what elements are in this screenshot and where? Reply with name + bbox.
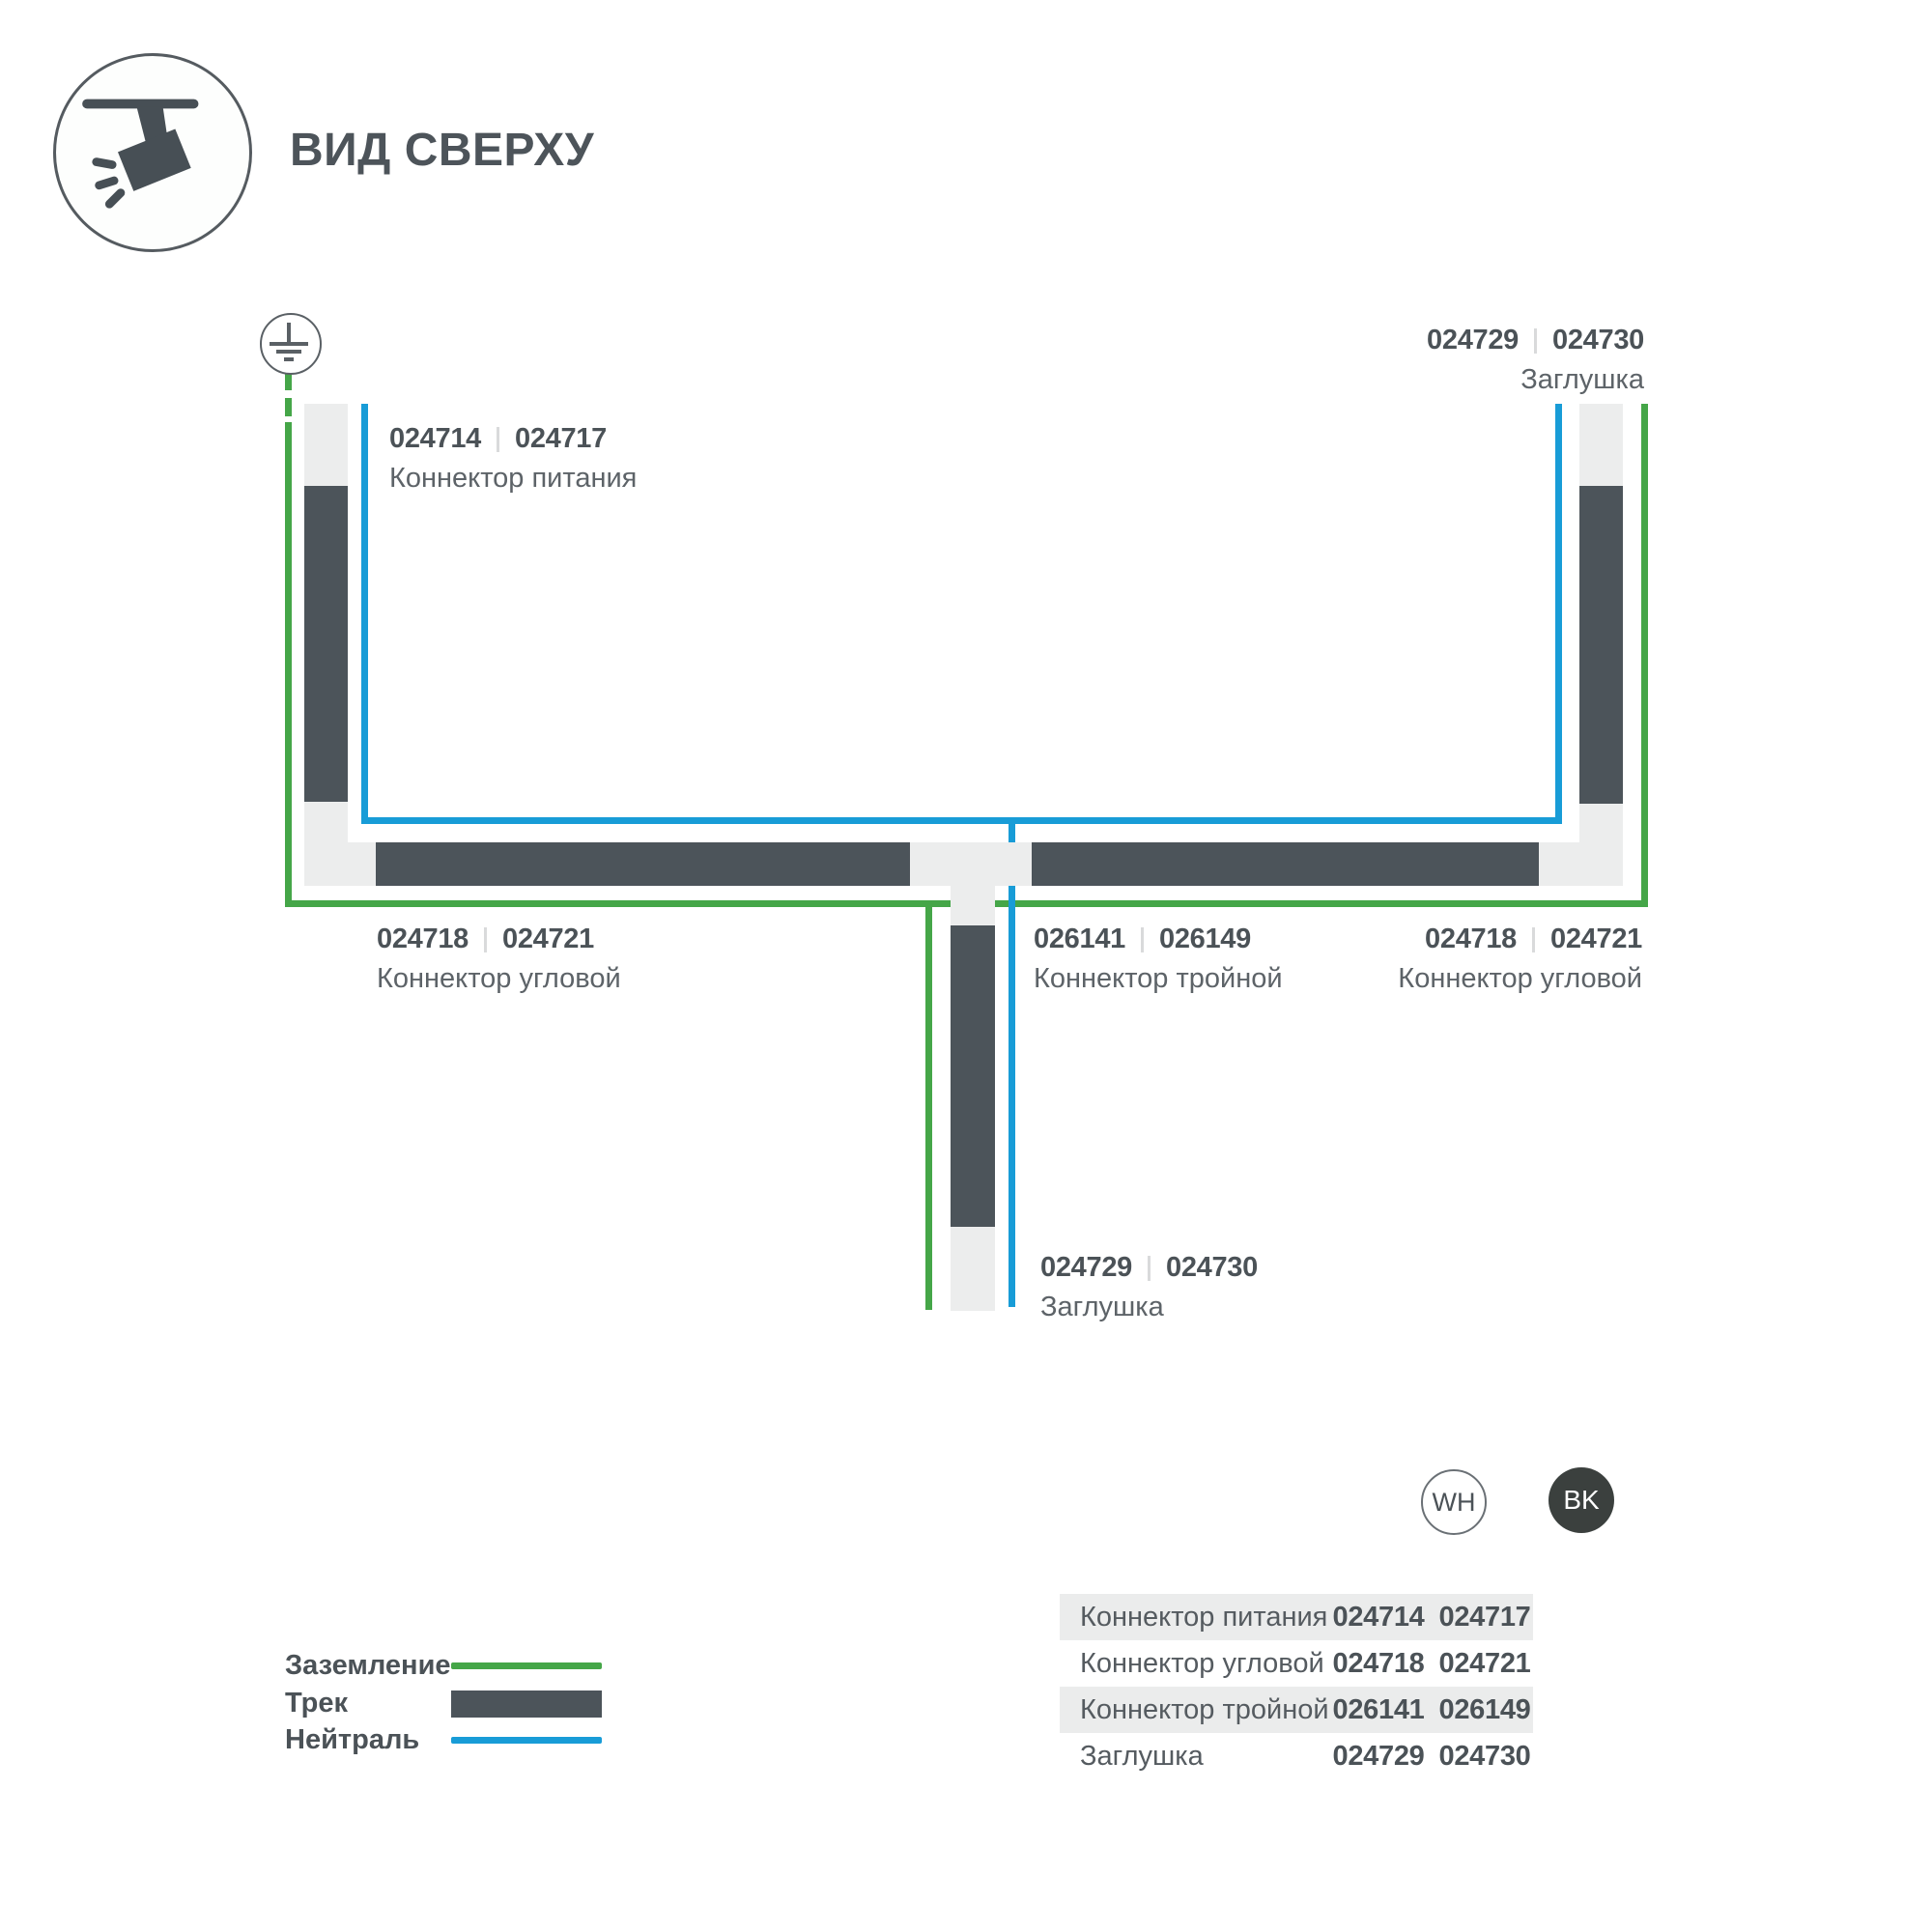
table-row: Заглушка 024729 024730 <box>1060 1733 1533 1779</box>
label-corner-right-name: Коннектор угловой <box>1398 965 1642 993</box>
legend-item-track: Трек <box>285 1685 604 1722</box>
ground-line-left <box>285 422 292 907</box>
label-power-name: Коннектор питания <box>389 465 637 493</box>
table-row: Коннектор угловой 024718 024721 <box>1060 1640 1533 1687</box>
code-divider <box>497 427 499 452</box>
code-divider <box>1532 927 1535 952</box>
part-code-wh: 024718 <box>1330 1648 1427 1680</box>
label-endcap-top-name: Заглушка <box>1427 366 1644 394</box>
code-bk: 024730 <box>1166 1254 1258 1282</box>
ground-line-dash-1 <box>285 374 292 390</box>
code-divider <box>1141 927 1144 952</box>
part-code-bk: 024730 <box>1436 1741 1533 1773</box>
legend-neutral-label: Нейтраль <box>285 1724 451 1756</box>
label-triple-connector: 026141 026149 Коннектор тройной <box>1034 925 1283 993</box>
part-name: Заглушка <box>1060 1741 1330 1773</box>
label-endcap-bottom: 024729 024730 Заглушка <box>1040 1254 1258 1321</box>
view-badge <box>53 53 252 252</box>
neutral-line-left <box>361 404 368 824</box>
part-code-bk: 026149 <box>1436 1694 1533 1726</box>
label-triple-codes: 026141 026149 <box>1034 925 1283 953</box>
track-horizontal-right <box>1032 842 1539 886</box>
ground-line-dash-2 <box>285 398 292 416</box>
part-code-wh: 024729 <box>1330 1741 1427 1773</box>
code-bk: 026149 <box>1159 925 1251 953</box>
legend-item-neutral: Нейтраль <box>285 1721 604 1759</box>
part-code-bk: 024721 <box>1436 1648 1533 1680</box>
code-bk: 024717 <box>515 425 607 453</box>
code-divider <box>484 927 487 952</box>
neutral-line-middle <box>361 817 1562 824</box>
label-corner-left-name: Коннектор угловой <box>377 965 621 993</box>
code-wh: 024718 <box>377 925 469 953</box>
label-power-codes: 024714 024717 <box>389 425 637 453</box>
track-light-icon <box>56 231 243 247</box>
part-code-wh: 024714 <box>1330 1602 1427 1634</box>
earth-ground-icon <box>262 356 316 373</box>
part-name: Коннектор питания <box>1060 1602 1330 1634</box>
part-code-bk: 024717 <box>1436 1602 1533 1634</box>
ground-badge <box>260 313 322 375</box>
label-endcap-bottom-name: Заглушка <box>1040 1293 1258 1321</box>
label-corner-right: 024718 024721 Коннектор угловой <box>1398 925 1642 993</box>
label-power-connector: 024714 024717 Коннектор питания <box>389 425 637 493</box>
ground-line-right <box>1641 404 1648 907</box>
part-code-wh: 026141 <box>1330 1694 1427 1726</box>
label-corner-right-codes: 024718 024721 <box>1398 925 1642 953</box>
code-wh: 026141 <box>1034 925 1125 953</box>
code-bk: 024721 <box>1550 925 1642 953</box>
code-bk: 024721 <box>502 925 594 953</box>
table-row: Коннектор питания 024714 024717 <box>1060 1594 1533 1640</box>
legend-ground-label: Заземление <box>285 1650 451 1682</box>
label-endcap-top: 024729 024730 Заглушка <box>1427 327 1644 394</box>
legend-track-swatch <box>451 1690 602 1718</box>
part-name: Коннектор тройной <box>1060 1694 1330 1726</box>
label-endcap-bottom-codes: 024729 024730 <box>1040 1254 1258 1282</box>
code-bk: 024730 <box>1552 327 1644 355</box>
parts-table: Коннектор питания 024714 024717 Коннекто… <box>1060 1594 1533 1779</box>
variant-black-label: BK <box>1563 1485 1599 1516</box>
code-wh: 024729 <box>1427 327 1519 355</box>
variant-white-badge: WH <box>1421 1469 1487 1535</box>
neutral-line-right <box>1555 404 1562 824</box>
part-name: Коннектор угловой <box>1060 1648 1330 1680</box>
track-horizontal-left <box>376 842 910 886</box>
variant-white-label: WH <box>1433 1488 1476 1518</box>
page: ВИД СВЕРХУ <box>0 0 1932 1932</box>
legend-track-label: Трек <box>285 1688 451 1719</box>
label-corner-left-codes: 024718 024721 <box>377 925 621 953</box>
legend-neutral-swatch <box>451 1737 602 1744</box>
ground-line-stem <box>925 900 932 1310</box>
track-right <box>1579 486 1623 804</box>
track-stem <box>951 925 995 1227</box>
label-triple-name: Коннектор тройной <box>1034 965 1283 993</box>
neutral-line-stem <box>1009 817 1015 1307</box>
label-corner-left: 024718 024721 Коннектор угловой <box>377 925 621 993</box>
code-wh: 024718 <box>1425 925 1517 953</box>
label-endcap-top-codes: 024729 024730 <box>1427 327 1644 355</box>
code-divider <box>1534 328 1537 354</box>
code-divider <box>1148 1256 1151 1281</box>
variant-black-badge: BK <box>1548 1467 1614 1533</box>
code-wh: 024729 <box>1040 1254 1132 1282</box>
legend-ground-swatch <box>451 1662 602 1669</box>
page-title: ВИД СВЕРХУ <box>290 124 594 177</box>
code-wh: 024714 <box>389 425 481 453</box>
legend-item-ground: Заземление <box>285 1647 604 1685</box>
table-row: Коннектор тройной 026141 026149 <box>1060 1687 1533 1733</box>
track-left <box>304 486 348 802</box>
